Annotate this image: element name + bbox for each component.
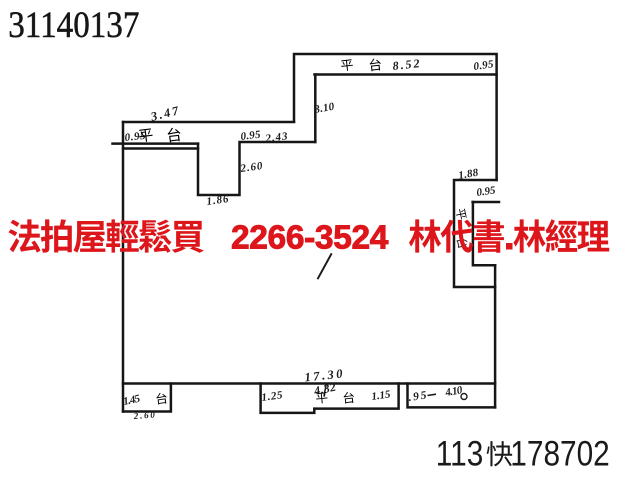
svg-text:2.60: 2.60 <box>132 410 155 422</box>
svg-text:178702: 178702 <box>510 433 609 473</box>
svg-text:8.52: 8.52 <box>392 56 420 73</box>
svg-text:2266-3524: 2266-3524 <box>231 219 389 256</box>
svg-text:113: 113 <box>436 433 484 473</box>
svg-text:0.95: 0.95 <box>124 130 147 144</box>
svg-text:0.95: 0.95 <box>240 129 262 143</box>
svg-text:31140137: 31140137 <box>8 4 139 45</box>
